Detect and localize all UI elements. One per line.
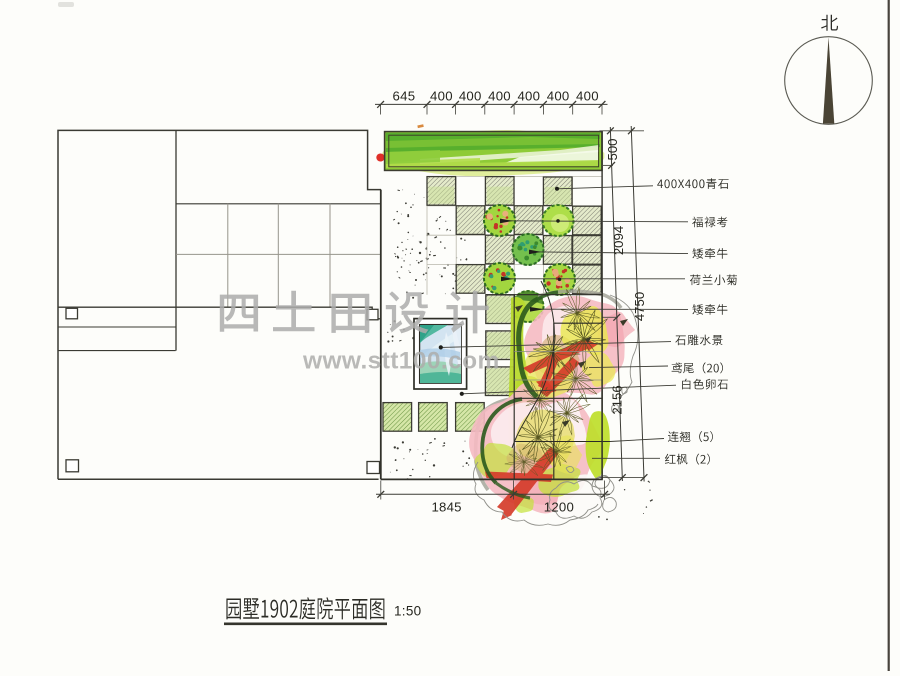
svg-text:1200: 1200 bbox=[544, 500, 574, 515]
svg-text:400: 400 bbox=[576, 89, 599, 104]
svg-text:400: 400 bbox=[430, 89, 453, 104]
svg-text:645: 645 bbox=[393, 89, 416, 104]
svg-text:1:50: 1:50 bbox=[394, 604, 421, 619]
svg-text:400: 400 bbox=[517, 89, 540, 104]
svg-text:500: 500 bbox=[605, 138, 620, 160]
svg-text:2094: 2094 bbox=[611, 226, 626, 255]
svg-text:400: 400 bbox=[547, 89, 570, 104]
svg-text:www.stt100.com: www.stt100.com bbox=[302, 348, 500, 375]
svg-text:1845: 1845 bbox=[432, 500, 462, 515]
svg-text:4750: 4750 bbox=[632, 292, 647, 321]
svg-text:2156: 2156 bbox=[610, 385, 625, 414]
svg-text:400: 400 bbox=[459, 89, 482, 104]
svg-text:400: 400 bbox=[488, 89, 511, 104]
